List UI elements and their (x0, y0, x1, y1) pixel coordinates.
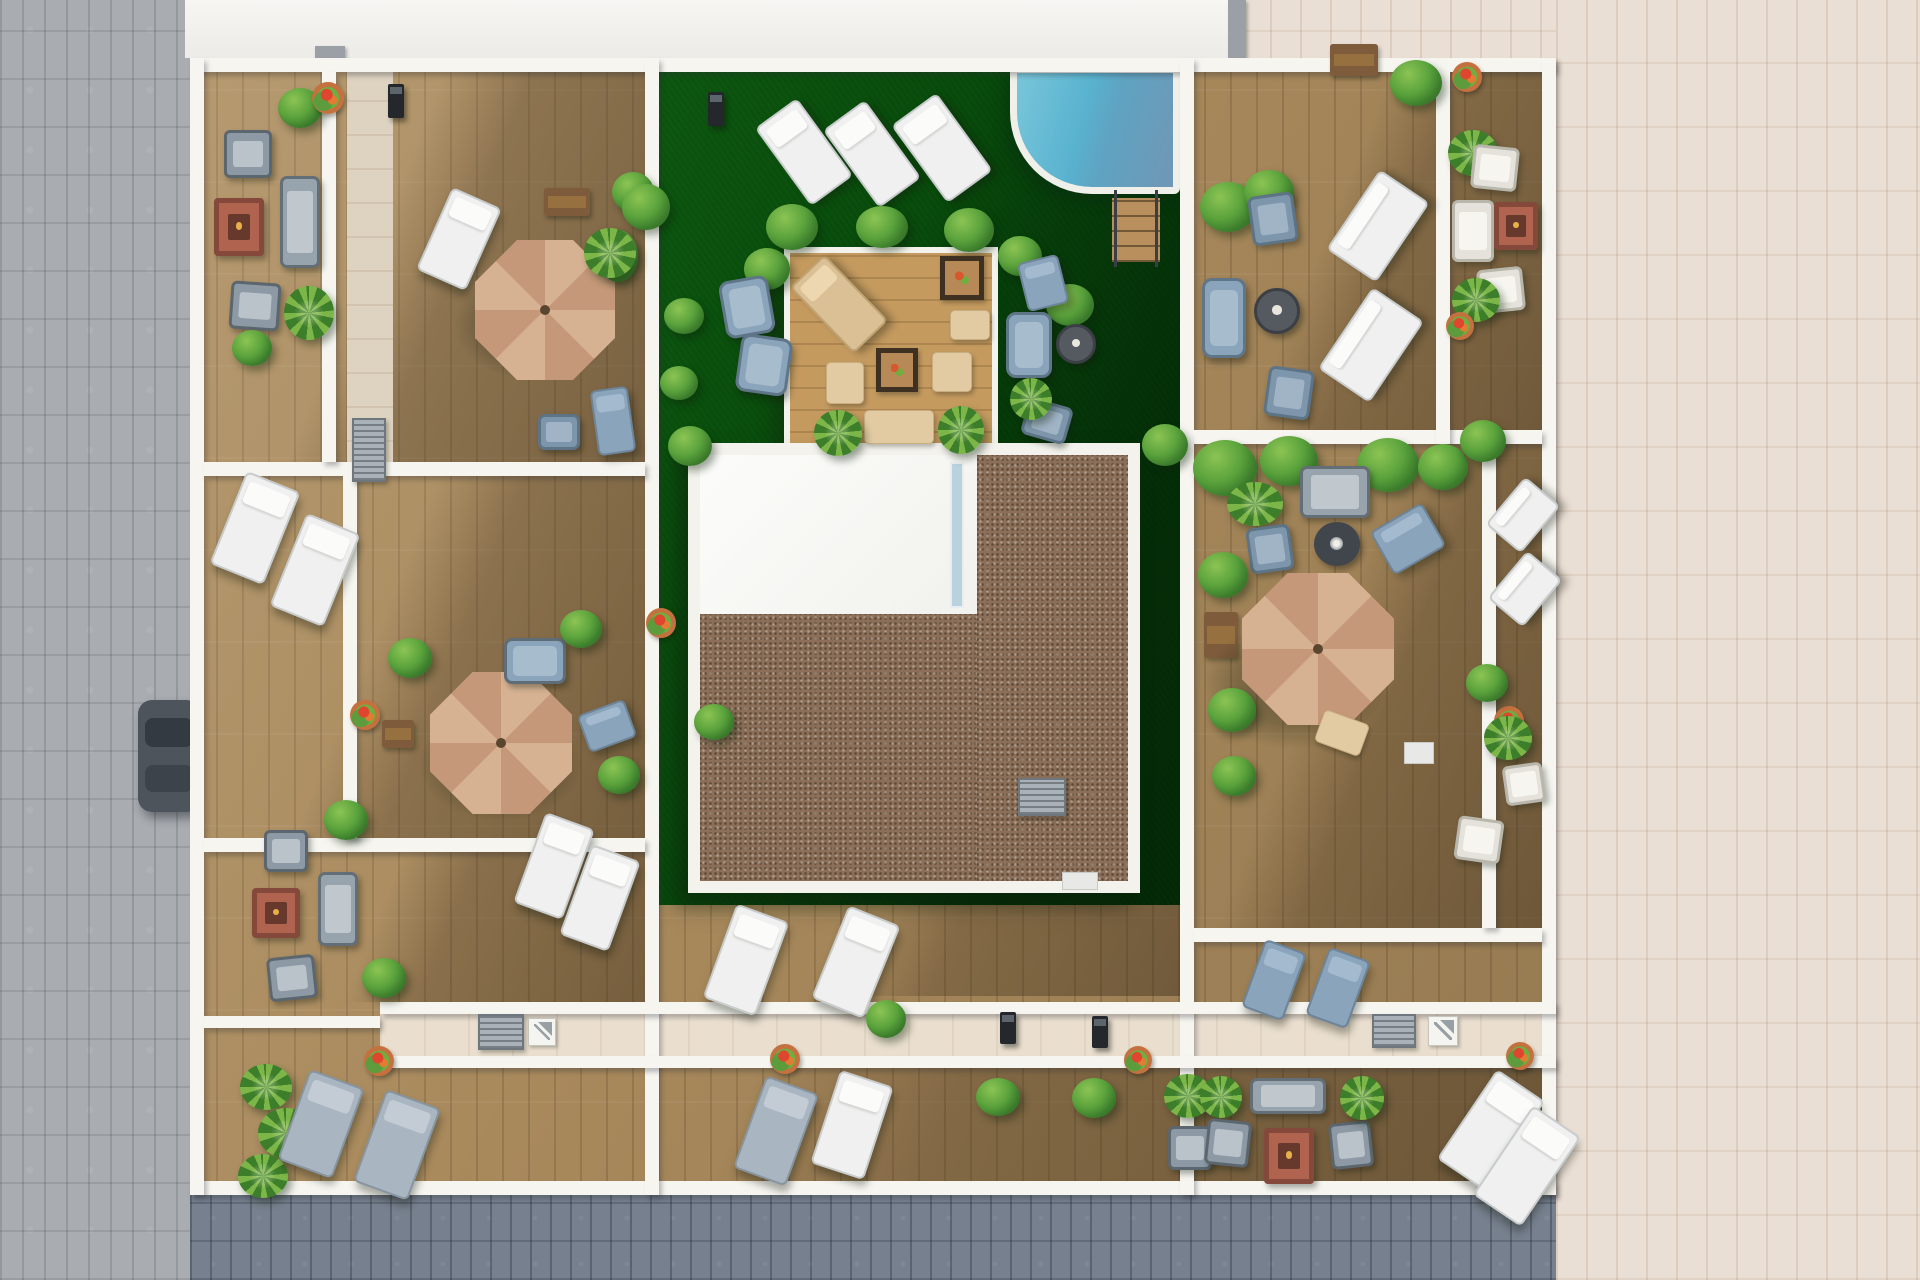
core-ledge (1062, 872, 1098, 890)
flower-pot (1452, 62, 1482, 92)
service-band-wall (380, 1002, 1556, 1014)
divider-wall-east (1180, 58, 1194, 1195)
pavement-bottom (190, 1195, 1556, 1280)
palm (814, 410, 862, 456)
flower-pot (350, 700, 380, 730)
bush (1212, 756, 1256, 796)
flower-pot (364, 1046, 394, 1076)
pool-steps (1112, 198, 1160, 262)
ac-unit (352, 418, 386, 482)
sofa-gray (1250, 1078, 1326, 1114)
service-band-wall (380, 1056, 1556, 1068)
lamp-post (708, 92, 724, 126)
palm (1200, 1076, 1242, 1118)
bush (1418, 444, 1468, 490)
armchair-blue (1263, 365, 1316, 421)
sofa-blue (717, 274, 776, 340)
flower-pot (1506, 1042, 1534, 1070)
bush (664, 298, 704, 334)
palm (1484, 716, 1532, 760)
bush (388, 638, 432, 678)
armchair-gray (264, 830, 308, 872)
palm (938, 406, 984, 454)
sofa-gray (1300, 466, 1370, 518)
lamp-post (388, 84, 404, 118)
armchair-gray (266, 954, 318, 1003)
armchair-white (1501, 761, 1546, 806)
palm (1340, 1076, 1384, 1120)
palm (238, 1154, 288, 1198)
terrace-wall (204, 1016, 380, 1028)
cushion-beige (932, 352, 972, 392)
terrace-wall (322, 72, 336, 462)
armchair-white (1470, 144, 1520, 193)
palm (1010, 378, 1052, 420)
daybed-blue (504, 638, 566, 684)
fire-table (214, 198, 264, 256)
pavement-right (1556, 0, 1920, 1280)
armchair-gray (1328, 1120, 1375, 1170)
bush (598, 756, 640, 794)
bush (944, 208, 994, 252)
bush (694, 704, 734, 740)
round-table (1254, 288, 1300, 334)
flower-pot (770, 1044, 800, 1074)
flower-pot (312, 82, 344, 114)
armchair-gray (1204, 1118, 1253, 1168)
cushion-beige (950, 310, 990, 340)
round-table (1056, 324, 1096, 364)
white-step (1404, 742, 1434, 764)
rooftop-ac-unit (1018, 778, 1066, 816)
ac-unit (1372, 1014, 1416, 1048)
lamp-post (1092, 1016, 1108, 1048)
armchair-gray (228, 280, 281, 331)
armchair-white (1453, 815, 1505, 865)
terrace-wall (1194, 928, 1542, 942)
flower-pot (646, 608, 676, 638)
flower-pot (1124, 1046, 1152, 1074)
bush (1390, 60, 1442, 106)
bush (866, 1000, 906, 1038)
picnic-bench (544, 188, 590, 216)
sofa-blue (1202, 278, 1246, 358)
terrace-wall (204, 462, 645, 476)
stone-path (347, 72, 393, 476)
bush (560, 610, 602, 648)
roof-hatch-arrow (528, 1018, 556, 1046)
bush (324, 800, 368, 840)
lamp-post (1000, 1012, 1016, 1044)
bush (622, 184, 670, 230)
flower-pot (1446, 312, 1474, 340)
bush (362, 958, 406, 998)
fire-table (1494, 202, 1538, 250)
armchair-blue (1247, 191, 1300, 247)
armchair-white (1452, 200, 1494, 262)
armchair-blue (1245, 523, 1295, 575)
parapet-right (1542, 58, 1556, 1195)
bush (1460, 420, 1506, 462)
bush (660, 366, 698, 400)
table-dark (876, 348, 918, 392)
palm (1227, 482, 1283, 526)
parasol (1242, 573, 1394, 725)
armchair-gray (224, 130, 272, 178)
picnic-bench (382, 720, 414, 748)
core-gravel-roof (977, 455, 1128, 881)
ac-unit (478, 1014, 524, 1050)
fire-round (1314, 522, 1360, 566)
bush (1142, 424, 1188, 466)
bush (1466, 664, 1508, 702)
scene (0, 0, 1920, 1280)
bush (232, 330, 272, 366)
sofa-blue (734, 333, 794, 398)
bush (1208, 688, 1256, 732)
bush (668, 426, 712, 466)
palm (240, 1064, 292, 1110)
core-gravel-roof (700, 614, 977, 881)
cushion-beige (826, 362, 864, 404)
fire-table (1264, 1128, 1314, 1184)
bush (1072, 1078, 1116, 1118)
sofa-gray (318, 872, 358, 946)
cushion-beige (864, 410, 934, 444)
armchair-blue (538, 414, 580, 450)
roof-vent (1228, 0, 1246, 58)
core-skylight (950, 462, 964, 608)
bush (766, 204, 818, 250)
sofa-gray (280, 176, 320, 268)
fire-table (252, 888, 300, 938)
palm (584, 228, 636, 278)
bush (1198, 552, 1248, 598)
bush (976, 1078, 1020, 1116)
sofa-blue (1006, 312, 1052, 378)
bush (856, 206, 908, 248)
roof-hatch-arrow (1428, 1016, 1458, 1046)
table-dark (940, 256, 984, 300)
terrace-wall (1436, 72, 1450, 444)
core-white-roof (700, 455, 977, 614)
picnic-bench (1330, 44, 1378, 76)
parapet-left (190, 58, 204, 1195)
palm (284, 286, 334, 340)
